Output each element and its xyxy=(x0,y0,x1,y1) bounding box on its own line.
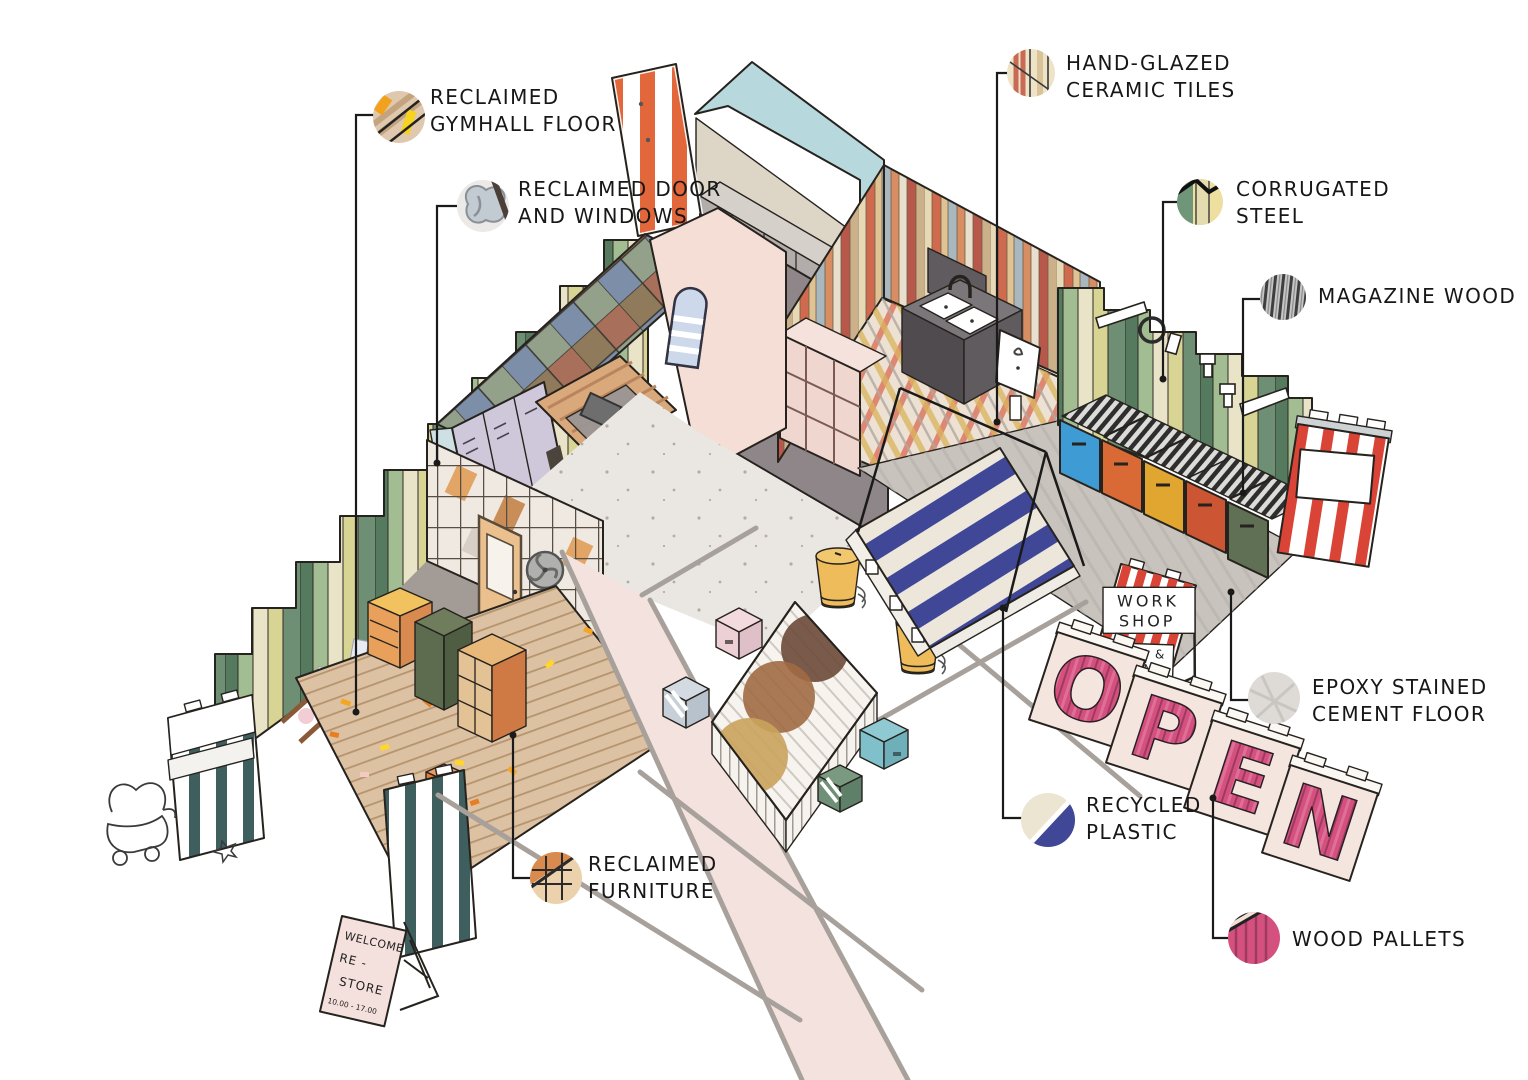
label-epoxy-floor: EPOXY STAINED xyxy=(1312,675,1488,699)
label-corrugated-steel: CORRUGATED xyxy=(1236,177,1390,201)
stool-green xyxy=(818,765,862,812)
label-corrugated-steel-2: STEEL xyxy=(1236,204,1304,228)
label-wood-pallets: WOOD PALLETS xyxy=(1292,927,1466,951)
label-door-windows-2: AND WINDOWS xyxy=(518,204,688,228)
label-furniture-2: FURNITURE xyxy=(588,879,715,903)
label-gymhall-floor: RECLAIMED xyxy=(430,85,560,109)
label-ceramic-tiles: HAND-GLAZED xyxy=(1066,51,1231,75)
workshop-sign-line2: SHOP xyxy=(1119,611,1175,630)
label-epoxy-floor-2: CEMENT FLOOR xyxy=(1312,702,1486,726)
label-magazine-wood: MAGAZINE WOOD xyxy=(1318,284,1516,308)
gate-door-left xyxy=(168,690,264,860)
label-ceramic-tiles-2: CERAMIC TILES xyxy=(1066,78,1236,102)
blank-sign-board xyxy=(1296,449,1374,503)
restore-axonometric-diagram: WORK SHOP COME & JOIN O P E N W xyxy=(0,0,1528,1080)
stool-teal xyxy=(860,718,908,769)
label-furniture: RECLAIMED xyxy=(588,852,718,876)
illustration-svg: WORK SHOP COME & JOIN O P E N W xyxy=(0,0,1528,1080)
label-recycled-plastic: RECYCLED xyxy=(1086,793,1202,817)
label-recycled-plastic-2: PLASTIC xyxy=(1086,820,1178,844)
label-gymhall-floor-2: GYMHALL FLOOR xyxy=(430,112,617,136)
workshop-sign-line1: WORK xyxy=(1117,591,1179,610)
cube-shelf-orange xyxy=(458,634,526,742)
stool-gray xyxy=(663,677,709,728)
stool-pink xyxy=(716,608,762,659)
label-door-windows: RECLAIMED DOOR xyxy=(518,177,722,201)
